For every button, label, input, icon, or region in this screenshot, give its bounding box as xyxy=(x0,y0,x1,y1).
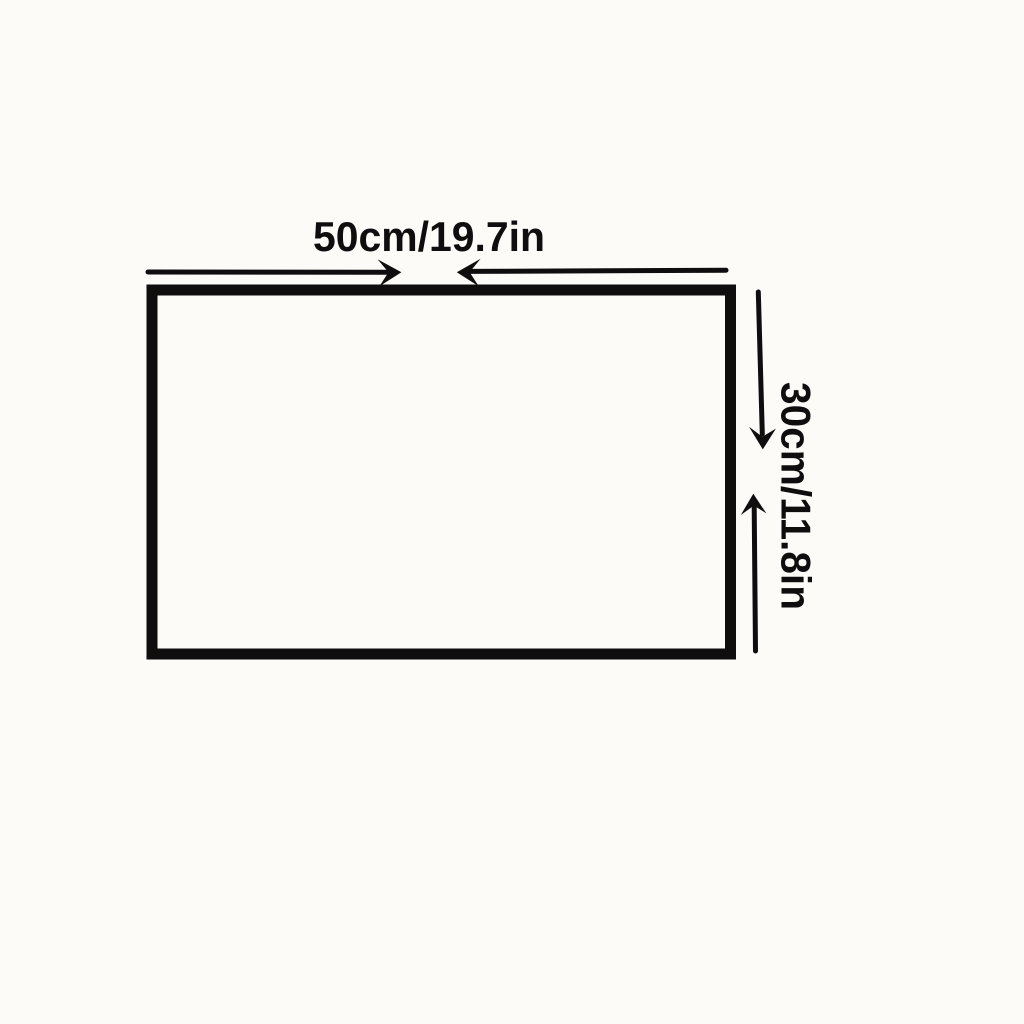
svg-text:50cm/19.7in: 50cm/19.7in xyxy=(313,213,545,260)
svg-text:30cm/11.8in: 30cm/11.8in xyxy=(773,382,820,610)
